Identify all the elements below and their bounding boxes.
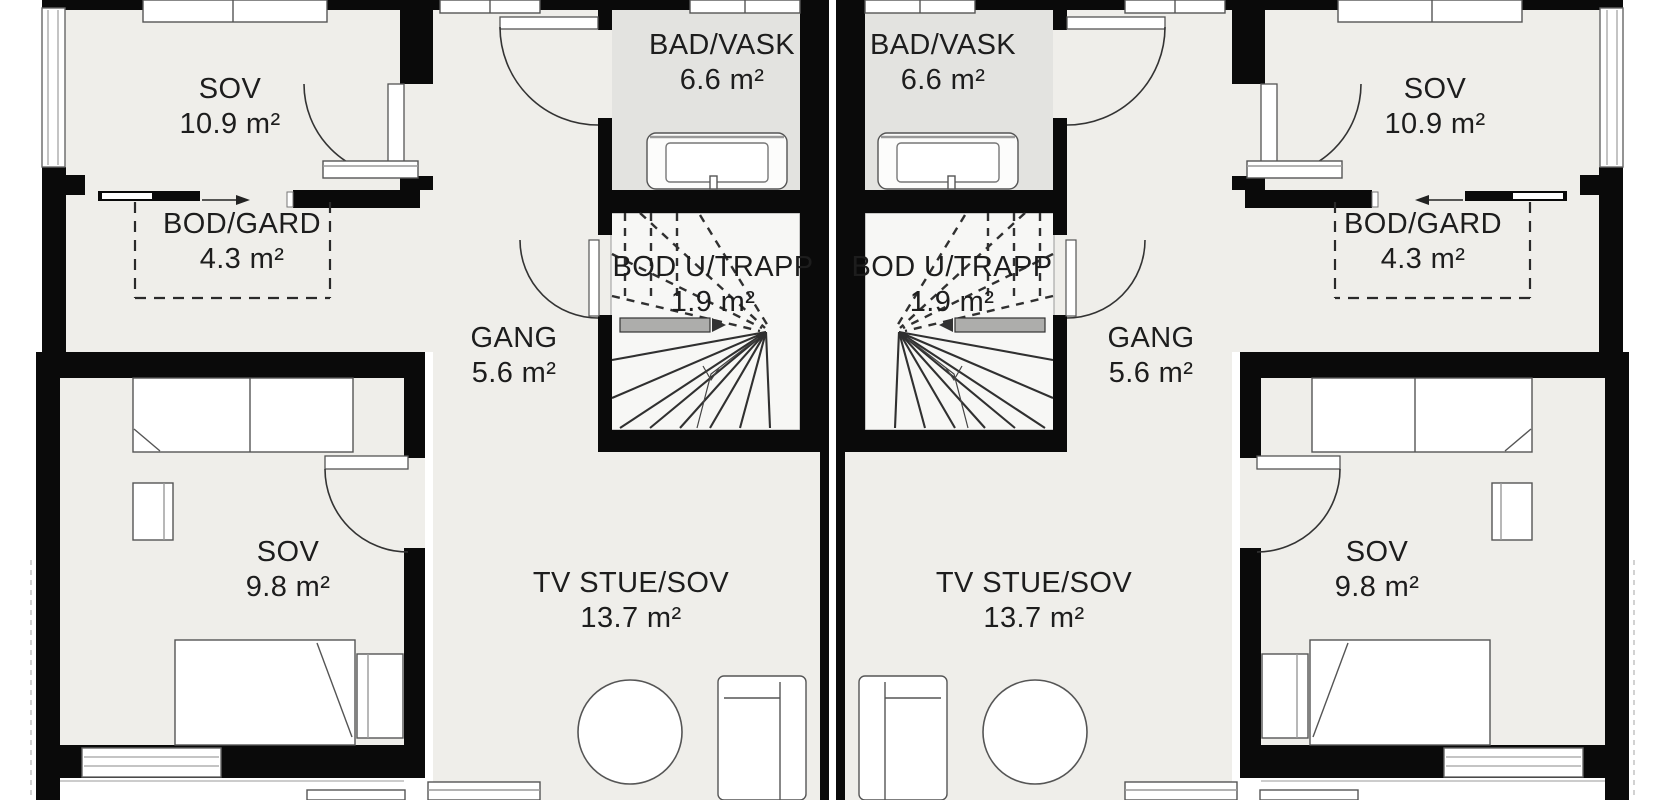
room-label-sov-upper-right: SOV10.9 m² — [1384, 72, 1485, 142]
room-label-gang-right: GANG5.6 m² — [1108, 321, 1195, 391]
bed-double — [133, 378, 353, 452]
understair-storage-shelf — [620, 318, 726, 332]
wardrobe-top — [143, 0, 327, 22]
room-label-sov-lower-right: SOV9.8 m² — [1335, 535, 1420, 605]
room-label-tv-stue-right: TV STUE/SOV13.7 m² — [936, 566, 1132, 636]
cabinet-sov-upper — [323, 161, 418, 178]
sofa — [718, 676, 806, 800]
bathtub — [647, 133, 787, 189]
window-bottom-wall — [82, 748, 221, 777]
room-label-bod-u-trapp-right: BOD U/TRAPP1.9 m² — [852, 250, 1053, 320]
dwelling-unit-left — [31, 0, 829, 800]
room-label-tv-stue-left: TV STUE/SOV13.7 m² — [533, 566, 729, 636]
room-label-sov-upper-left: SOV10.9 m² — [179, 72, 280, 142]
window-side-wall — [42, 8, 65, 167]
room-label-gang-left: GANG5.6 m² — [471, 321, 558, 391]
room-label-bad-vask-right: BAD/VASK6.6 m² — [870, 28, 1016, 98]
bed-single — [175, 640, 403, 745]
round-table — [578, 680, 682, 784]
dwelling-unit-right-mirror — [836, 0, 1634, 800]
tv-bench-cutoff — [428, 782, 540, 800]
room-label-bod-u-trapp-left: BOD U/TRAPP1.9 m² — [613, 250, 814, 320]
room-label-bad-vask-left: BAD/VASK6.6 m² — [649, 28, 795, 98]
floor-plan-page: SOV10.9 m² BAD/VASK6.6 m² BOD/GARD4.3 m²… — [0, 0, 1670, 800]
room-label-sov-lower-left: SOV9.8 m² — [246, 535, 331, 605]
room-label-bod-gard-left: BOD/GARD4.3 m² — [163, 207, 321, 277]
sink-counter-gang — [440, 0, 540, 13]
room-label-bod-gard-right: BOD/GARD4.3 m² — [1344, 207, 1502, 277]
bathroom-fixture-top — [690, 0, 800, 13]
nightstand — [133, 483, 173, 540]
